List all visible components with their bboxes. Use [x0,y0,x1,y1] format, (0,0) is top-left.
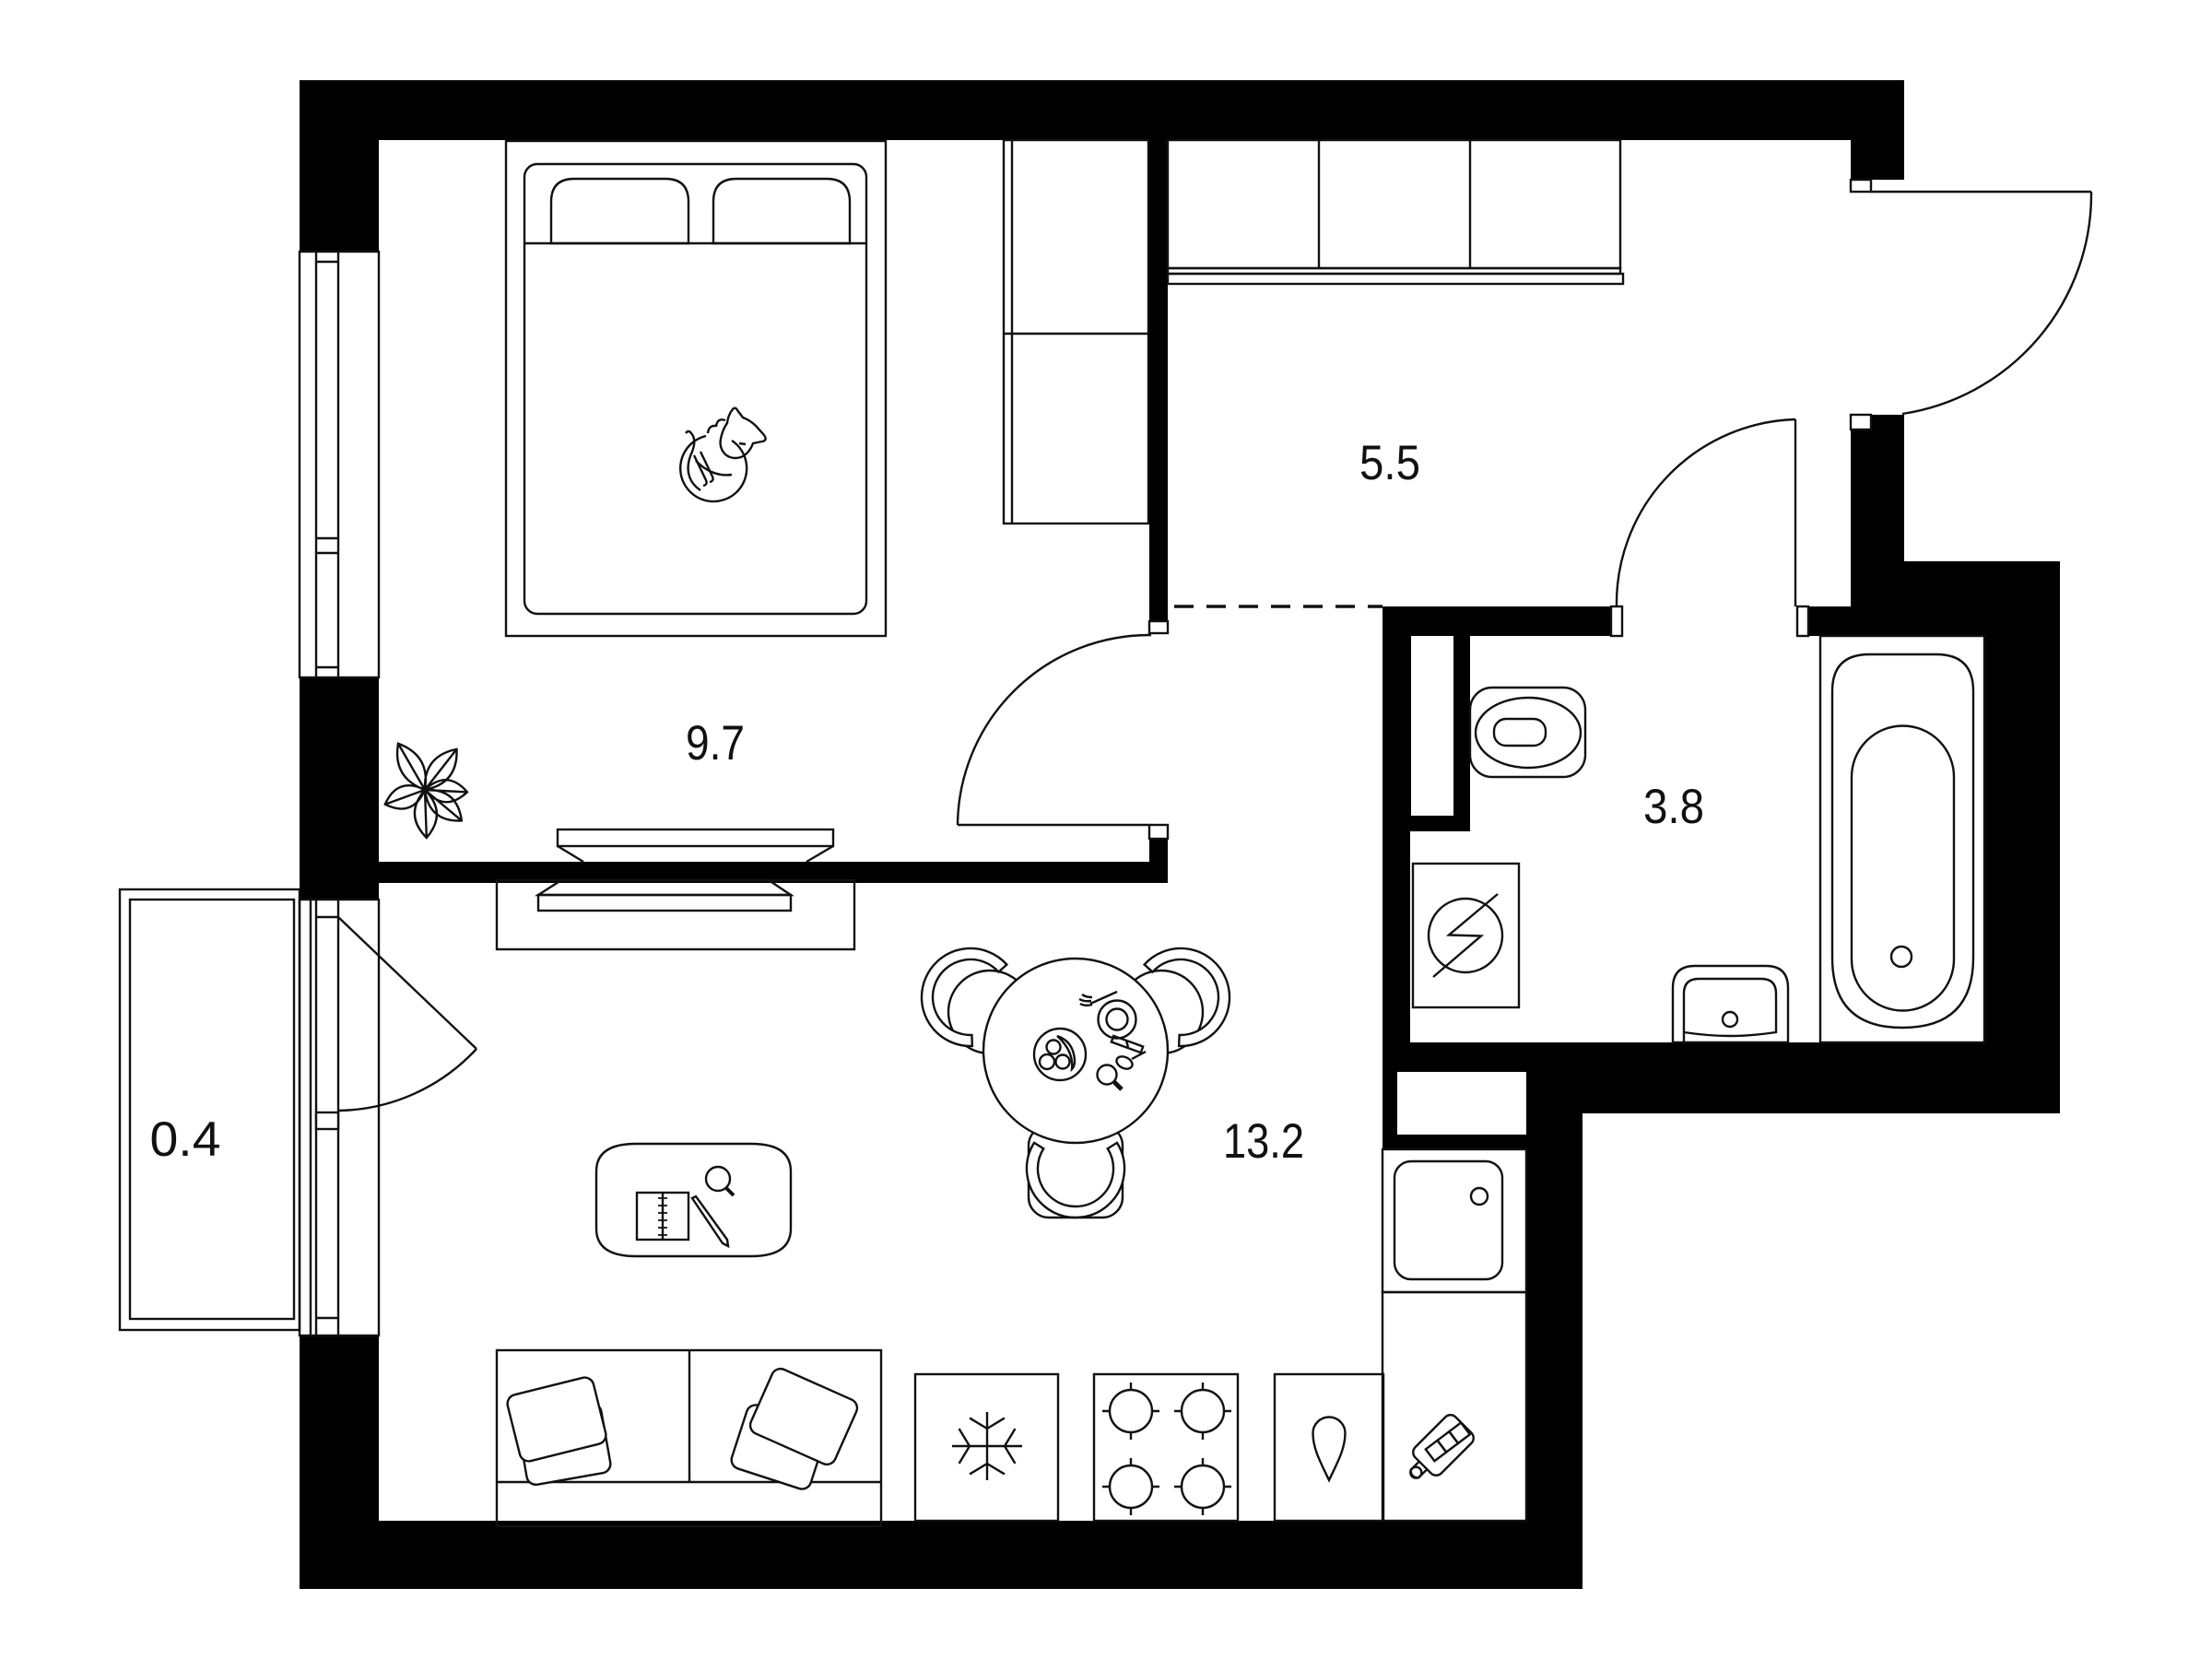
svg-text:5.5: 5.5 [1359,436,1420,490]
svg-text:9.7: 9.7 [686,716,745,771]
svg-text:3.8: 3.8 [1643,780,1704,834]
svg-text:0.4: 0.4 [150,1112,221,1167]
svg-text:13.2: 13.2 [1223,1114,1304,1169]
